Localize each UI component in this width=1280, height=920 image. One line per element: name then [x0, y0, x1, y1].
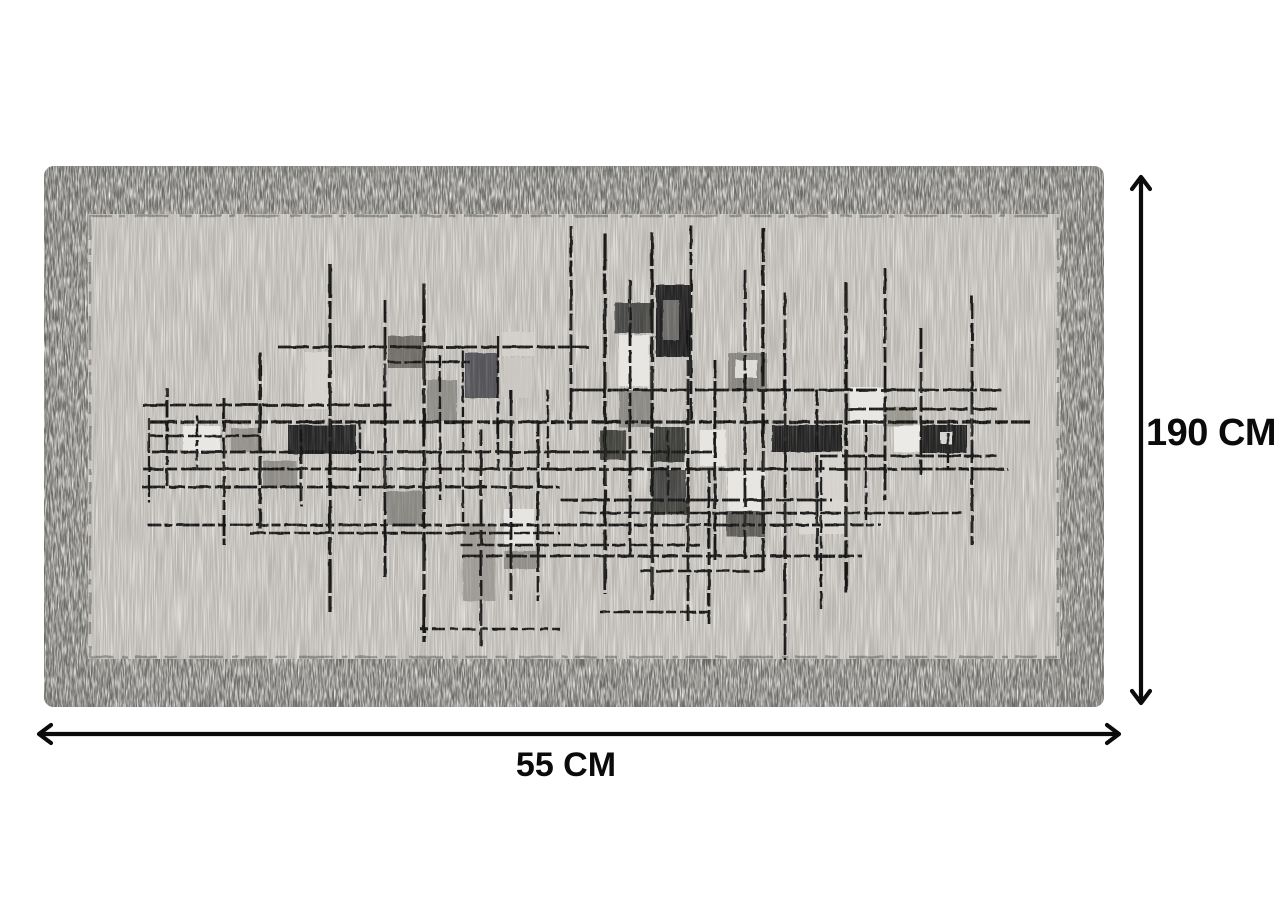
svg-text:190 CM: 190 CM — [1146, 412, 1276, 454]
svg-text:55 CM: 55 CM — [516, 746, 616, 784]
